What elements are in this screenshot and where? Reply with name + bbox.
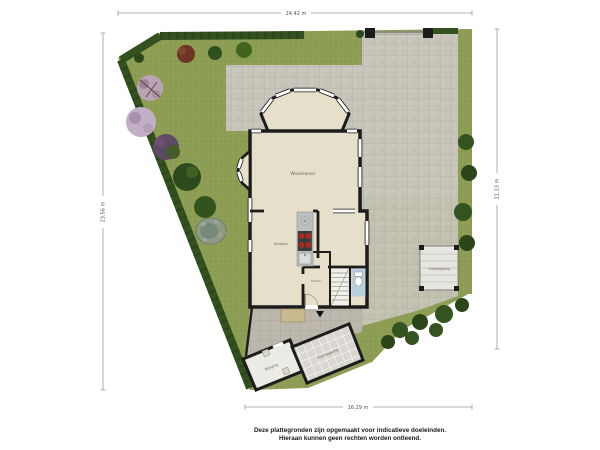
sink-icon — [299, 253, 311, 264]
red-tree-icon — [177, 45, 195, 63]
dim-bottom: 16.29 m — [348, 405, 369, 411]
pond-icon — [196, 218, 226, 244]
cooktop-icon — [298, 231, 312, 251]
label-keuken: Keuken — [274, 241, 288, 246]
wc-room — [352, 269, 366, 297]
lilac-tree-icon — [126, 107, 156, 137]
dim-top: 24.42 m — [286, 11, 307, 17]
label-entree: Entree — [311, 279, 321, 283]
label-woonkamer: Woonkamer — [291, 171, 316, 176]
bush-icon — [356, 30, 364, 38]
extractor-hood-icon — [301, 217, 309, 225]
pink-tree-icon — [137, 75, 163, 101]
floorplan-canvas: Woonkamer Keuken Entree Berging Overkapp… — [0, 0, 600, 450]
site-plan: Woonkamer Keuken Entree Berging Overkapp… — [0, 0, 600, 450]
disclaimer-line2: Hieraan kunnen geen rechten worden ontle… — [279, 435, 421, 442]
stairs-icon — [332, 269, 349, 306]
dim-left: 23.56 m — [101, 201, 107, 222]
bay-window-north — [261, 90, 349, 131]
kitchen-counter — [297, 212, 313, 266]
label-overkapping-right: Overkapping — [428, 267, 449, 271]
dim-right: 21.13 m — [495, 178, 501, 199]
disclaimer-line1: Deze plattegronden zijn opgemaakt voor i… — [254, 427, 446, 434]
doormat-icon — [281, 309, 305, 322]
toilet-icon — [355, 272, 363, 286]
grass-strip-right — [458, 30, 472, 294]
